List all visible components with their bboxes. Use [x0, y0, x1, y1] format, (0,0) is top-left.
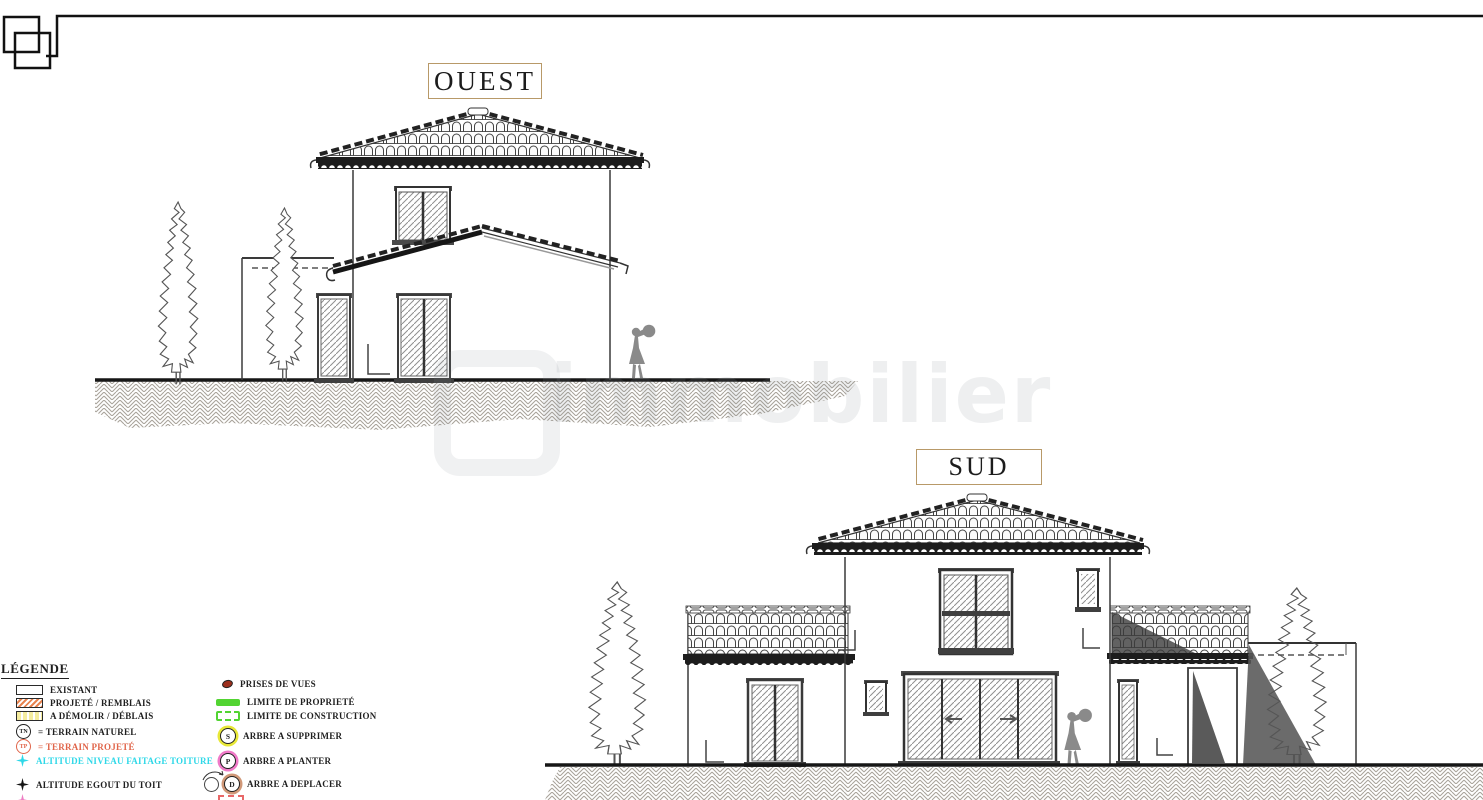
terrain-projete-symbol: TP — [16, 739, 31, 754]
existant-swatch — [16, 685, 43, 695]
faitage-altitude-icon — [16, 754, 29, 767]
south-ground-hatch — [545, 767, 1483, 800]
south-right-wing — [1107, 606, 1253, 664]
frame-corner-decoration — [4, 16, 1483, 68]
legend-item-prises-de-vues: PRISES DE VUES — [222, 679, 316, 689]
west-walls — [353, 170, 610, 380]
legend-item-truncated-left — [16, 794, 29, 800]
terrain-naturel-symbol: TN — [16, 724, 31, 739]
legend-item-arbre-supprimer: S ARBRE A SUPPRIMER — [220, 728, 342, 744]
south-small-window — [863, 680, 889, 716]
projete-hatch-swatch — [16, 698, 43, 708]
arbre-planter-symbol: P — [220, 753, 236, 769]
legend-item-existant: EXISTANT — [16, 685, 97, 695]
west-wing-roof — [327, 226, 628, 281]
south-elevation-title: SUD — [948, 452, 1009, 482]
egout-altitude-icon — [16, 778, 29, 791]
west-main-roof — [311, 108, 650, 169]
south-entry-door — [1188, 668, 1237, 765]
truncated-pink-dashed-swatch — [218, 795, 244, 800]
west-ground-hatch — [95, 381, 858, 430]
prises-de-vues-icon — [221, 679, 234, 689]
label-box-south: SUD — [916, 449, 1042, 485]
legend-item-arbre-deplacer: D ARBRE A DEPLACER — [204, 776, 342, 792]
legend-item-terrain-projete: TP = TERRAIN PROJETÉ — [16, 739, 135, 754]
drawing-sheet: immobilier OUEST SUD LÉGENDE EXISTANT PR… — [0, 0, 1483, 800]
south-person-figure — [1064, 709, 1092, 765]
legend-item-demolir-deblais: A DÉMOLIR / DÉBLAIS — [16, 711, 154, 721]
arbre-supprimer-symbol: S — [220, 728, 236, 744]
elevation-south — [545, 494, 1483, 800]
west-trees — [158, 202, 303, 384]
south-main-roof — [807, 494, 1150, 555]
legend-item-terrain-naturel: TN = TERRAIN NATUREL — [16, 724, 137, 739]
west-french-window — [394, 293, 454, 383]
label-box-west: OUEST — [428, 63, 542, 99]
arbre-deplacer-symbol: D — [224, 776, 240, 792]
truncated-pink-icon — [16, 794, 29, 800]
deplacer-arrow-icon — [200, 769, 226, 781]
south-upper-small-window — [1075, 568, 1101, 612]
legend-item-altitude-faitage: ALTITUDE NIVEAU FAITAGE TOITURE — [16, 754, 213, 767]
legend-item-arbre-planter: P ARBRE A PLANTER — [220, 753, 331, 769]
legend-item-projete-remblais: PROJETÉ / REMBLAIS — [16, 698, 151, 708]
legend-panel: LÉGENDE EXISTANT PROJETÉ / REMBLAIS A DÉ… — [0, 658, 430, 800]
legend-item-limite-propriete: LIMITE DE PROPRIETÉ — [216, 697, 355, 707]
west-elevation-title: OUEST — [434, 66, 536, 97]
west-person-figure — [629, 325, 655, 378]
limite-construction-swatch — [216, 711, 240, 721]
west-door-left — [314, 293, 354, 383]
south-french-door — [744, 678, 806, 767]
legend-item-altitude-egout: ALTITUDE EGOUT DU TOIT — [16, 778, 162, 791]
limite-propriete-swatch — [216, 699, 240, 706]
top-border-line — [46, 16, 1483, 56]
south-sliding-door — [898, 671, 1060, 766]
south-upper-window — [938, 568, 1014, 654]
west-section-mark — [368, 344, 390, 374]
legend-item-limite-construction: LIMITE DE CONSTRUCTION — [216, 711, 377, 721]
legend-item-truncated-right — [218, 795, 244, 800]
legend-title: LÉGENDE — [1, 661, 69, 679]
elevation-west — [95, 108, 858, 430]
south-narrow-window — [1116, 679, 1140, 765]
demolir-hatch-swatch — [16, 711, 43, 721]
